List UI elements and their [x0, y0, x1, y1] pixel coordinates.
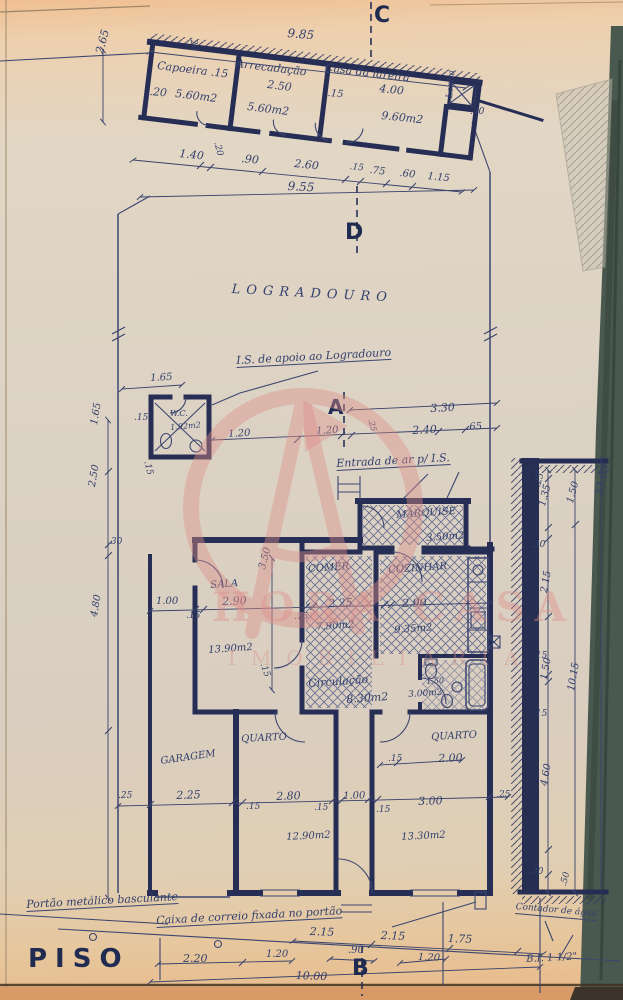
dim-1-40: 1.40 — [179, 148, 205, 162]
note-contador-agua: Contador de água — [515, 903, 597, 921]
dim-20-rot: .20 — [211, 141, 223, 157]
area-capoeira: 5.60m2 — [175, 88, 218, 104]
dim-rc-15b: .15 — [533, 710, 547, 719]
dim-4-80-col: 4.80 — [90, 594, 104, 618]
dim-3-30: 3.30 — [430, 402, 455, 414]
dim-25-bl: .25 — [118, 792, 132, 801]
dim-2-40: 2.40 — [412, 424, 437, 436]
room-sala: SALA — [210, 579, 239, 591]
dim-rc-1-50b: 1.50 — [540, 657, 554, 681]
dim-bd-1-20a: 1.20 — [266, 950, 288, 960]
title-piso: PISO — [28, 946, 130, 972]
dim-30-col: .30 — [108, 538, 122, 547]
dim-1-65-col: 1.65 — [90, 402, 104, 426]
dim-bd-1-75: 1.75 — [448, 933, 473, 945]
dim-bd-10-00: 10.00 — [296, 970, 328, 982]
area-comer: 7.90m2 — [316, 620, 355, 633]
room-circulacao: Circulação — [308, 674, 368, 689]
dim-15-wc2: .15 — [141, 460, 153, 476]
area-circulacao: 8.30m2 — [346, 691, 389, 705]
dim-3-50-v: 3.50 — [258, 546, 273, 570]
dim-60: .60 — [399, 169, 416, 181]
dim-2-60: 2.60 — [294, 158, 320, 172]
dim-capoeira-20v: .20 — [187, 36, 198, 52]
room-lenha: Lenha — [446, 70, 457, 99]
dim-15-b1: .15 — [246, 803, 260, 812]
area-arrecadacao: 5.60m2 — [247, 101, 290, 117]
dim-15-circ: .15 — [258, 662, 271, 679]
dim-15-s2: .15 — [294, 613, 308, 622]
dim-rc-10-15: 10.15 — [567, 662, 582, 692]
dim-90: .90 — [241, 153, 260, 166]
area-bath: 3.00m2 — [408, 689, 443, 700]
area-quarto-2: 13.30m2 — [401, 831, 446, 843]
dim-25-a: .25 — [366, 418, 377, 432]
dim-bd-1-20b: 1.20 — [418, 953, 441, 964]
dim-rc-30: .30 — [531, 541, 545, 550]
room-comer: COMER — [308, 562, 350, 575]
dim-15-top: .15 — [327, 89, 344, 100]
area-marquise: 3.50m2 — [426, 531, 465, 544]
dim-9-55: 9.55 — [287, 180, 314, 193]
dim-1-65-wc: 1.65 — [150, 373, 173, 384]
dim-lareira-400: 4.00 — [379, 83, 405, 97]
room-quarto-2: QUARTO — [431, 731, 477, 743]
room-cozinha: COZINHAR — [388, 562, 448, 576]
area-quarto-1: 12.90m2 — [286, 831, 331, 843]
area-wc: 1.92m2 — [170, 421, 201, 432]
dim-25-br: .25 — [496, 790, 511, 799]
dim-15-b2: .15 — [314, 804, 328, 813]
dim-1-20-wc: 1.20 — [228, 429, 251, 440]
dim-2-25-g: 2.25 — [176, 789, 201, 801]
dim-2-25: 2.25 — [328, 597, 353, 609]
dim-1-00-c: 1.00 — [343, 791, 366, 802]
room-marquise: MARQUISE — [396, 507, 456, 521]
section-marker-a: A — [328, 397, 343, 417]
dim-1-50-bath: 1.50 — [426, 677, 444, 686]
dim-rc-1-50a: 1.50 — [566, 480, 581, 504]
dim-3-00: 3.00 — [418, 795, 443, 807]
room-casa-da-lareira: Casa da lareira — [325, 62, 411, 83]
dim-rc-2-15: 2.15 — [540, 570, 554, 594]
room-arrecadacao: Arrecadação — [236, 58, 307, 78]
dim-rc-33-00: 33.00 — [593, 464, 612, 497]
section-marker-d: D — [345, 222, 363, 244]
annotation-text-layer: 9.85CCapoeira .15.20.205.60m2Arrecadação… — [0, 0, 623, 1000]
dim-bd-2-15b: 2.15 — [381, 930, 406, 942]
dim-2-90-sala: 2.90 — [222, 595, 247, 607]
dim-arrecadacao-250: 2.50 — [267, 79, 293, 93]
dim-rc-4-60: 4.60 — [540, 763, 554, 787]
dim-2-00: 2.00 — [438, 752, 463, 764]
area-cozinha: 9.35m2 — [394, 623, 433, 636]
room-capoeira: Capoeira .15 — [157, 60, 229, 80]
dim-1-15: 1.15 — [427, 172, 450, 184]
area-sala: 13.90m2 — [208, 643, 253, 656]
dim-9-85: 9.85 — [287, 27, 315, 41]
dim-bd-2-20: 2.20 — [183, 953, 208, 964]
dim-rc-30b: .30 — [529, 868, 543, 877]
dim-2-90-coz: 2.90 — [402, 597, 427, 609]
dim-15-row: .15 — [349, 163, 364, 173]
dim-75: .75 — [369, 166, 386, 178]
section-marker-b: B — [352, 958, 369, 980]
room-wc: W.C. — [170, 410, 188, 418]
dim-2-50-col: 2.50 — [88, 464, 102, 488]
site-logradouro: LOGRADOURO — [231, 283, 393, 304]
section-marker-c: C — [374, 5, 390, 27]
dim-bd-2-15a: 2.15 — [310, 926, 335, 938]
note-bi: B.I. 1 1/2" — [526, 952, 578, 965]
dim-30-top: .30 — [470, 108, 484, 117]
dim-capoeira-20: .20 — [149, 86, 167, 98]
note-is-apoio: I.S. de apoio ao Logradouro — [236, 347, 391, 368]
dim-rc-50: .50 — [560, 871, 572, 887]
dim-15-q2: .15 — [388, 755, 402, 764]
area-lareira: 9.60m2 — [381, 110, 424, 125]
dim-15-b3: .15 — [376, 806, 390, 815]
dim-bd-90: .90 — [348, 946, 364, 956]
room-garagem: GARAGEM — [160, 749, 216, 767]
room-quarto-1: QUARTO — [241, 733, 287, 745]
dim-15-wc: .15 — [134, 414, 148, 423]
dim-2-65: 2.65 — [94, 28, 111, 55]
dim-2-80: 2.80 — [276, 790, 301, 802]
dim-15-s1: .15 — [186, 612, 200, 621]
note-portao: Portão metálico basculante — [26, 891, 178, 912]
dim-65: .65 — [466, 422, 482, 433]
dim-1-00-drive: 1.00 — [156, 597, 178, 607]
dim-1-20-a: 1.20 — [316, 426, 339, 437]
note-entrada-ar: Entrada de ar p/ I.S. — [336, 452, 450, 471]
blueprint-scan: 9.85CCapoeira .15.20.205.60m2Arrecadação… — [0, 0, 623, 1000]
